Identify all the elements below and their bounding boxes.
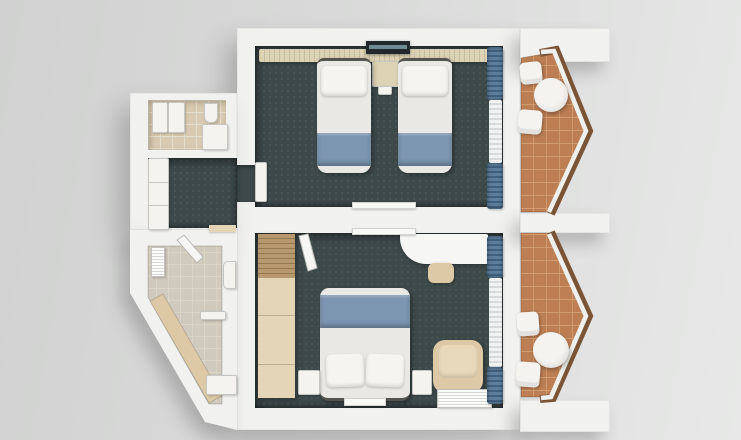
doors-overlay-svg <box>0 0 741 440</box>
bathroom-lower-door-leaf <box>177 235 203 263</box>
floorplan-scene <box>0 0 741 440</box>
double-bedroom-door-leaf <box>299 234 317 271</box>
